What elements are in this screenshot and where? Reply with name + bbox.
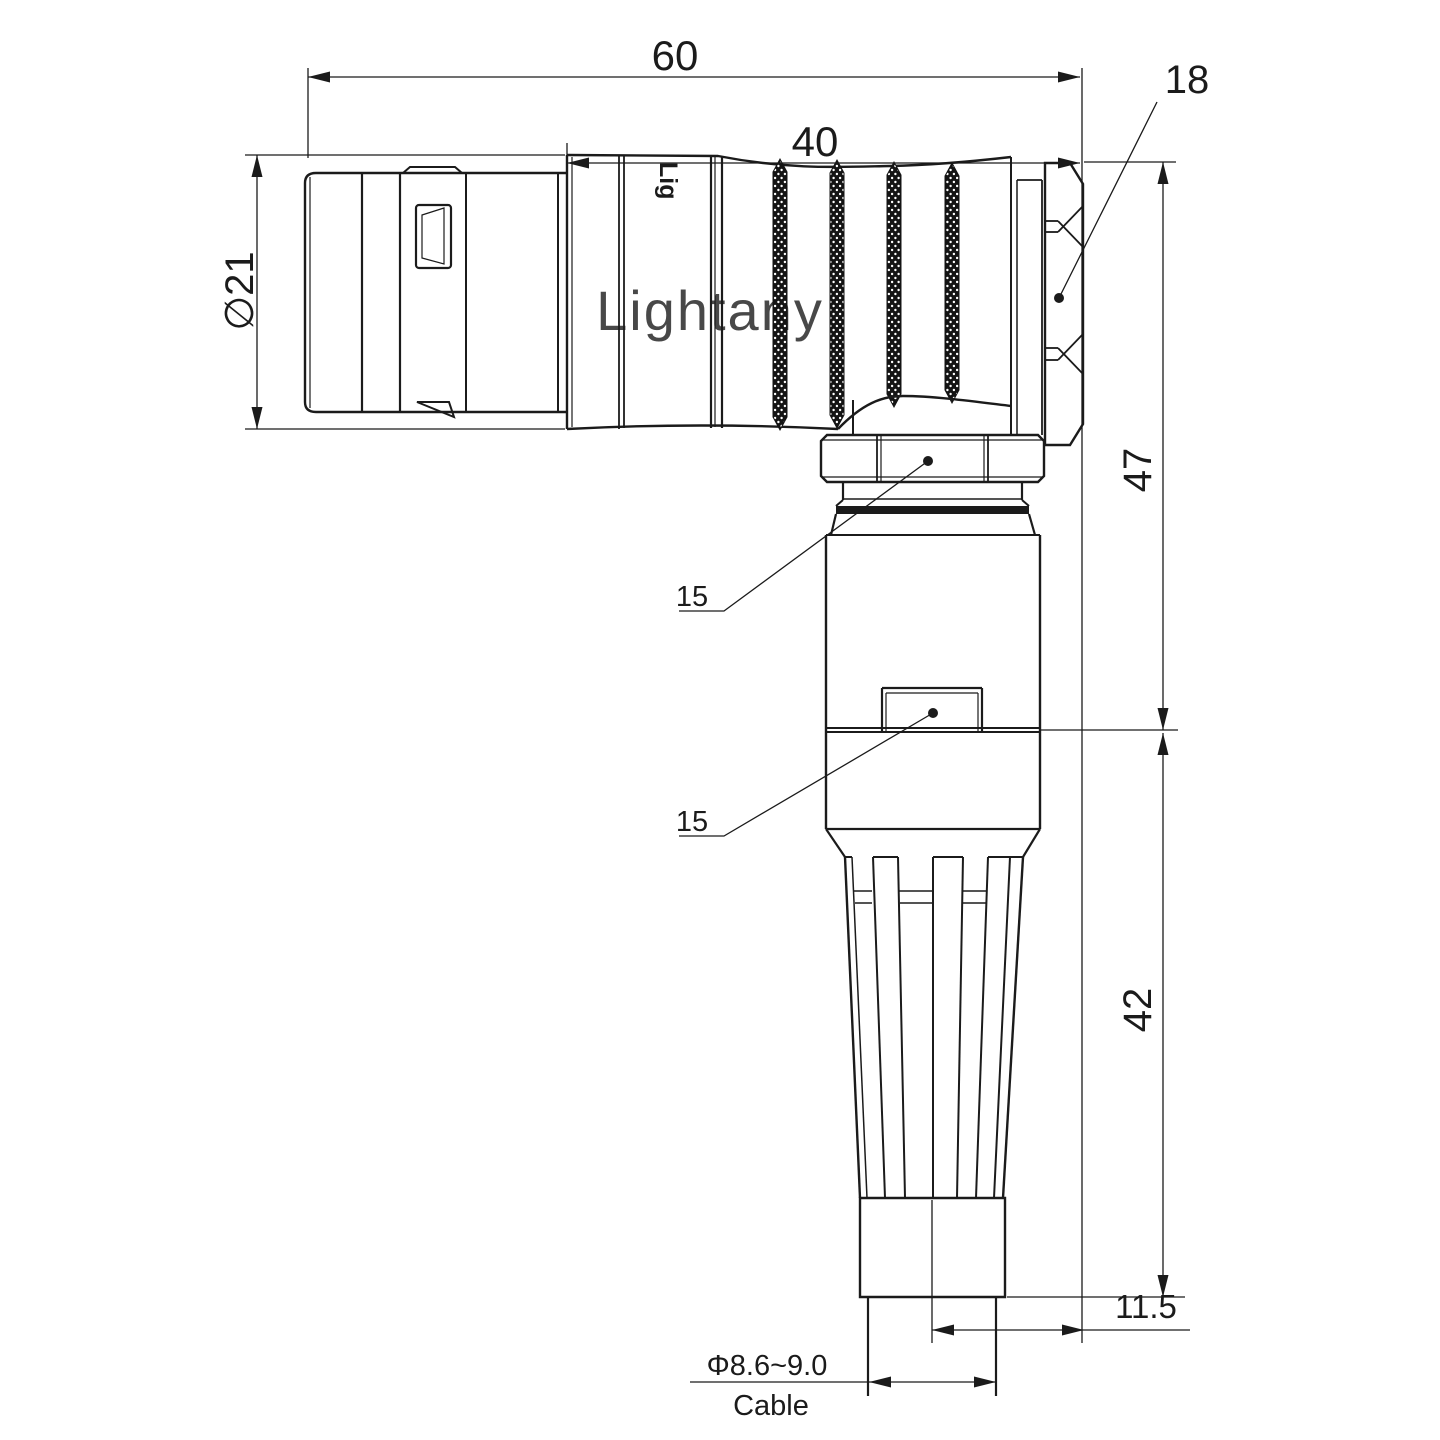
plug-barrel [305, 167, 567, 417]
dim-coupling-nut-label: 15 [676, 581, 708, 613]
dim-height-lower: 42 [1007, 733, 1185, 1297]
dim-rear-length-label: 40 [792, 118, 839, 165]
lower-body [826, 535, 1040, 829]
dim-cable-diameter-label: Φ8.6~9.0 [707, 1350, 828, 1382]
dim-hex-nut-label: 18 [1165, 58, 1210, 102]
strain-relief [826, 829, 1040, 1198]
dim-plug-diameter: ∅21 [218, 155, 565, 429]
hex-nut [1045, 163, 1083, 445]
technical-drawing: Lightany [0, 0, 1440, 1440]
keyway-window [416, 205, 451, 268]
callout-hex-nut: 18 [1054, 58, 1209, 303]
dim-plug-diameter-label: ∅21 [218, 251, 262, 330]
body-logo: Lig [654, 162, 682, 200]
dim-height-upper-label: 47 [1116, 448, 1160, 493]
drawing-canvas: Lightany [0, 0, 1440, 1440]
dim-lower-nut-label: 15 [676, 806, 708, 838]
dim-cable-diameter: Φ8.6~9.0 Cable [690, 1350, 996, 1422]
dim-cable-axis-offset-label: 11.5 [1115, 1288, 1177, 1325]
dim-cable-axis-offset: 11.5 [932, 1200, 1190, 1343]
dim-rear-length: 40 [567, 118, 1080, 169]
dim-overall-length-label: 60 [652, 32, 699, 79]
latch-notch [417, 402, 454, 417]
dimension-annotations: 60 40 18 ∅21 [218, 32, 1209, 1422]
oring-section [826, 482, 1040, 535]
dim-height-lower-label: 42 [1116, 988, 1160, 1033]
elbow-hump [838, 396, 1011, 429]
cable-caption: Cable [733, 1390, 809, 1422]
coupling-nut [821, 435, 1044, 482]
